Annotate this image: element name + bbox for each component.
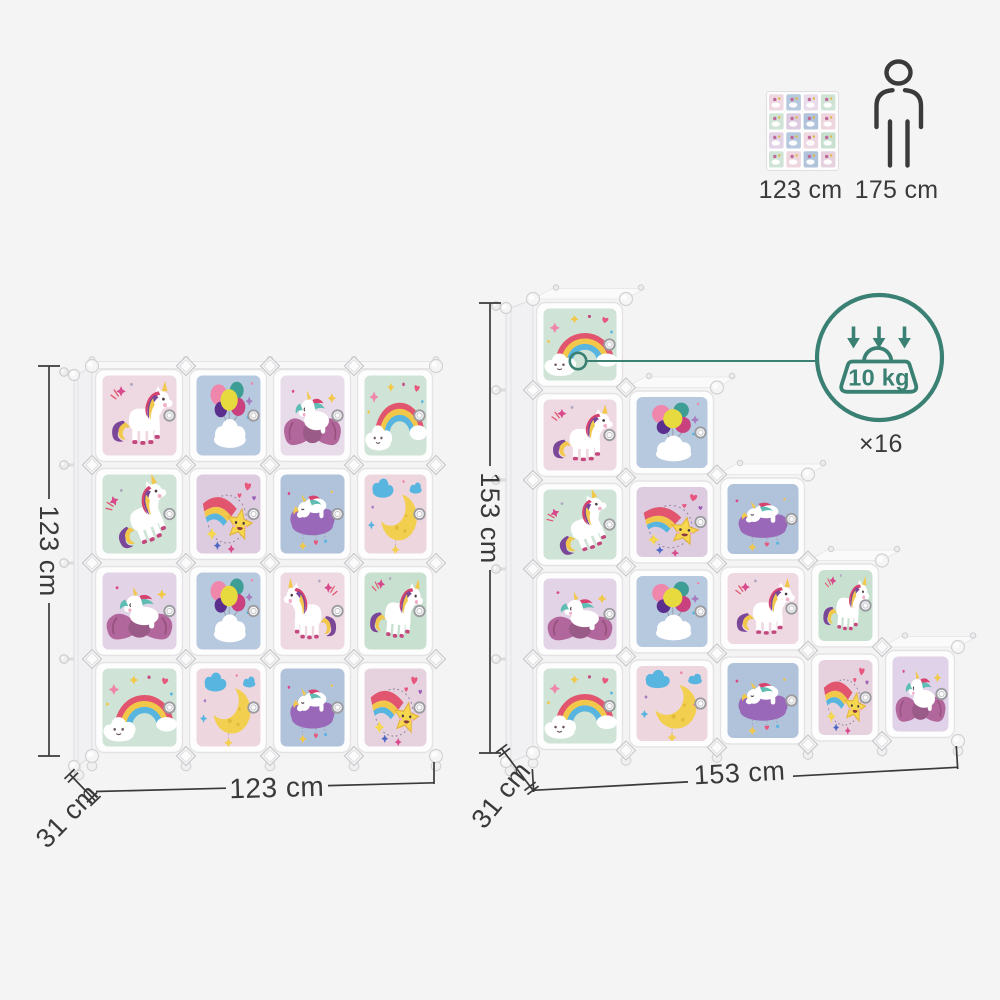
svg-text:123 cm: 123 cm: [759, 176, 843, 204]
svg-text:153 cm: 153 cm: [475, 472, 505, 564]
svg-text:123 cm: 123 cm: [34, 505, 64, 597]
svg-text:153 cm: 153 cm: [693, 756, 786, 791]
svg-text:10 kg: 10 kg: [848, 365, 910, 391]
svg-text:123 cm: 123 cm: [229, 771, 325, 804]
svg-text:175 cm: 175 cm: [855, 176, 939, 204]
svg-text:×16: ×16: [859, 430, 903, 458]
